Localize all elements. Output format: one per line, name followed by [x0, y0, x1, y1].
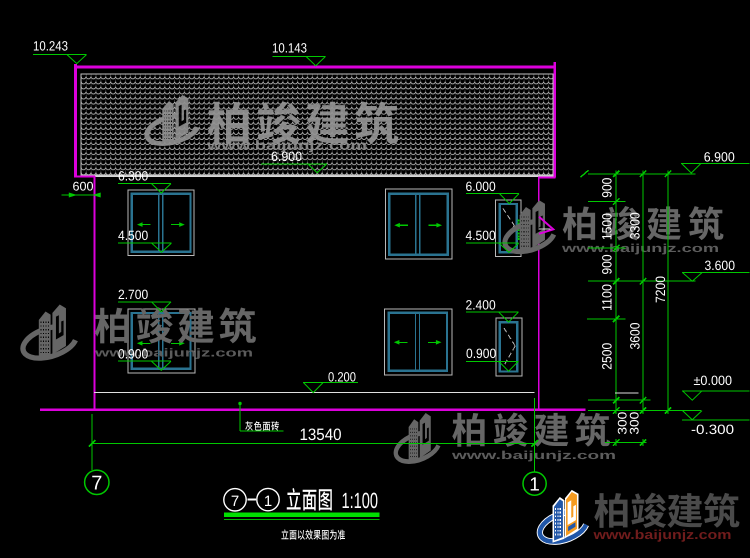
svg-text:www.baijunjz.com: www.baijunjz.com [592, 527, 731, 542]
svg-text:1500: 1500 [600, 213, 615, 240]
svg-text:13540: 13540 [300, 426, 342, 444]
svg-text:4.500: 4.500 [466, 228, 496, 243]
svg-text:1: 1 [264, 493, 272, 510]
svg-text:www.baijunjz.com: www.baijunjz.com [560, 243, 719, 255]
svg-text:0.900: 0.900 [466, 346, 496, 361]
svg-text:7: 7 [231, 493, 239, 510]
svg-text:2.400: 2.400 [466, 297, 496, 312]
svg-text:2.700: 2.700 [118, 287, 148, 302]
svg-text:300: 300 [628, 412, 642, 435]
svg-text:1:100: 1:100 [342, 488, 379, 513]
svg-text:3600: 3600 [628, 323, 643, 350]
svg-text:6.300: 6.300 [118, 169, 148, 184]
svg-text:1100: 1100 [600, 284, 615, 311]
svg-text:900: 900 [600, 178, 615, 198]
svg-text:6.900: 6.900 [271, 149, 302, 164]
svg-text:1: 1 [529, 475, 540, 496]
svg-text:6.000: 6.000 [466, 179, 496, 194]
svg-text:3300: 3300 [628, 212, 643, 239]
svg-text:10.243: 10.243 [33, 39, 68, 54]
svg-text:www.baijunjz.com: www.baijunjz.com [450, 450, 616, 462]
svg-text:±0.000: ±0.000 [694, 373, 733, 388]
svg-text:0.200: 0.200 [328, 369, 356, 384]
svg-text:10.143: 10.143 [272, 41, 307, 56]
svg-text:6.900: 6.900 [704, 149, 735, 164]
svg-text:0.900: 0.900 [118, 347, 148, 362]
svg-text:900: 900 [600, 255, 615, 275]
svg-text:7: 7 [91, 473, 102, 495]
svg-text:-0.300: -0.300 [691, 422, 734, 437]
svg-text:7200: 7200 [653, 276, 668, 303]
svg-text:3.600: 3.600 [705, 258, 736, 273]
svg-text:2500: 2500 [600, 343, 615, 370]
svg-text:600: 600 [73, 179, 94, 193]
svg-text:4.500: 4.500 [118, 228, 148, 243]
